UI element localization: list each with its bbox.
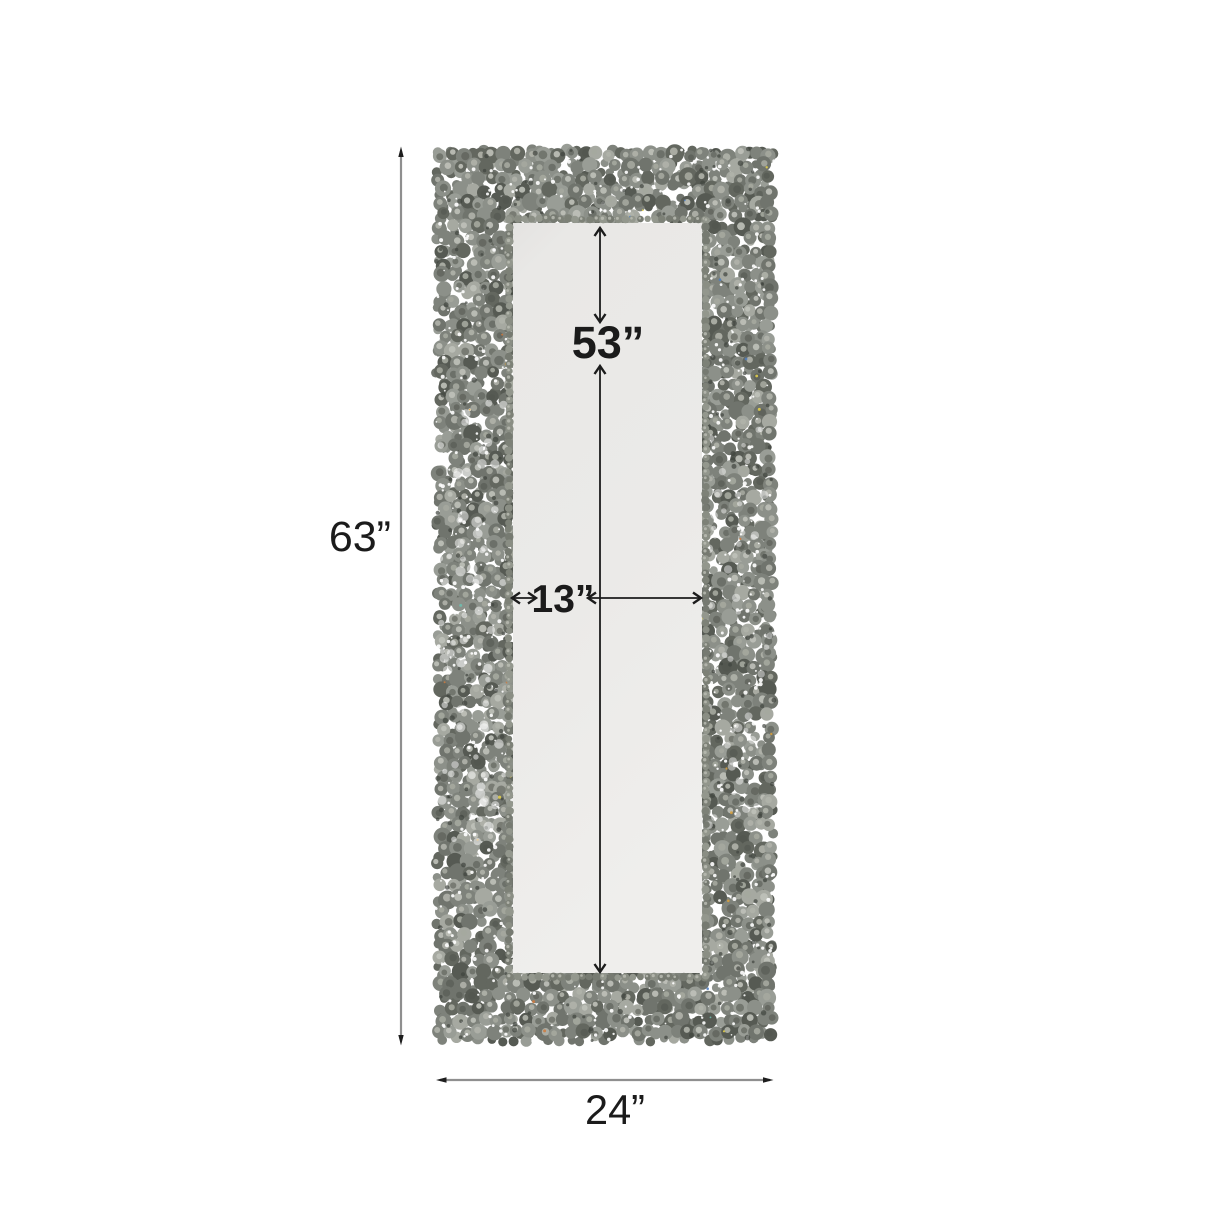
svg-text:53”: 53” (572, 317, 645, 368)
svg-text:63”: 63” (329, 513, 391, 561)
svg-text:13”: 13” (532, 578, 595, 621)
svg-text:24”: 24” (585, 1086, 645, 1133)
